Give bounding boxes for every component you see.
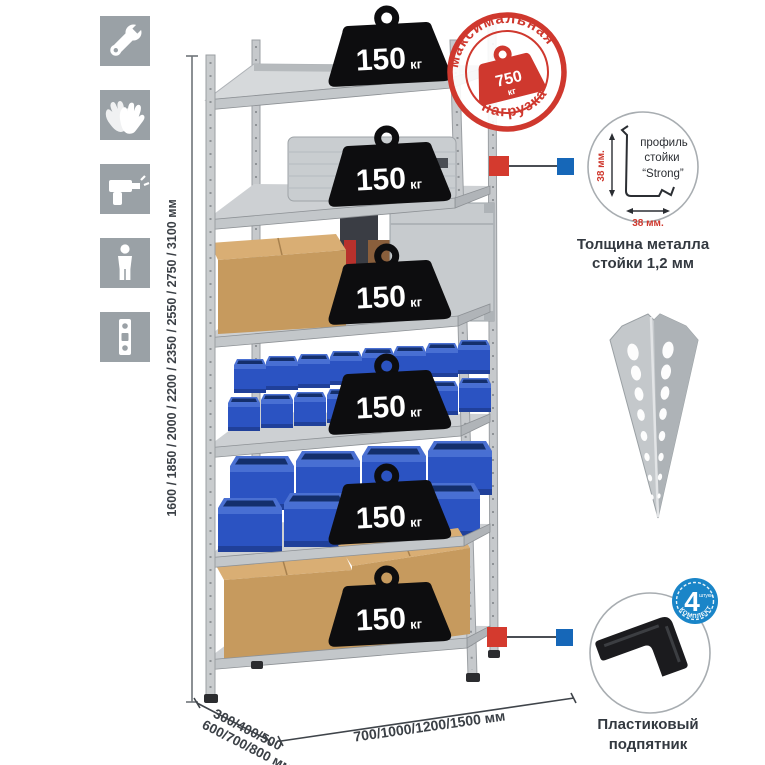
svg-text:150: 150 xyxy=(355,500,407,536)
height-dimension xyxy=(186,56,198,702)
svg-text:150: 150 xyxy=(355,602,407,638)
svg-text:кг: кг xyxy=(410,616,423,632)
depth-dimension: 300/400/500 600/700/800 мм xyxy=(194,698,301,765)
width-dimension: 700/1000/1200/1500 мм xyxy=(278,693,576,746)
svg-text:150: 150 xyxy=(355,42,407,78)
svg-text:штуки: штуки xyxy=(699,593,713,599)
callout-connectors xyxy=(487,156,574,647)
svg-text:150: 150 xyxy=(355,390,407,426)
svg-text:кг: кг xyxy=(410,176,423,192)
profile-detail: 38 мм. 38 мм. профиль стойки “Strong” То… xyxy=(577,112,710,272)
svg-text:стойки 1,2 мм: стойки 1,2 мм xyxy=(592,255,694,272)
svg-text:подпятник: подпятник xyxy=(609,736,688,753)
svg-text:кг: кг xyxy=(410,56,423,72)
svg-text:кг: кг xyxy=(410,404,423,420)
weight-150kg: 150 кг xyxy=(325,6,451,87)
svg-text:38 мм.: 38 мм. xyxy=(632,218,664,229)
corner-post-image xyxy=(610,314,698,518)
svg-text:кг: кг xyxy=(410,514,423,530)
svg-text:150: 150 xyxy=(355,280,407,316)
svg-text:“Strong”: “Strong” xyxy=(642,168,684,180)
rack-scene: 1600 / 1850 / 2000 / 2200 / 2350 / 2550 … xyxy=(0,0,765,765)
height-dimension-label: 1600 / 1850 / 2000 / 2200 / 2350 / 2550 … xyxy=(165,199,179,516)
svg-text:38 мм.: 38 мм. xyxy=(596,150,607,182)
svg-text:профиль: профиль xyxy=(640,137,688,149)
svg-text:Толщина металла: Толщина металла xyxy=(577,236,710,253)
svg-text:кг: кг xyxy=(410,294,423,310)
svg-text:700/1000/1200/1500 мм: 700/1000/1200/1500 мм xyxy=(352,707,506,744)
svg-text:Пластиковый: Пластиковый xyxy=(597,716,698,733)
svg-text:150: 150 xyxy=(355,162,407,198)
svg-text:стойки: стойки xyxy=(644,152,679,164)
product-infographic: 1600 / 1850 / 2000 / 2200 / 2350 / 2550 … xyxy=(0,0,765,765)
